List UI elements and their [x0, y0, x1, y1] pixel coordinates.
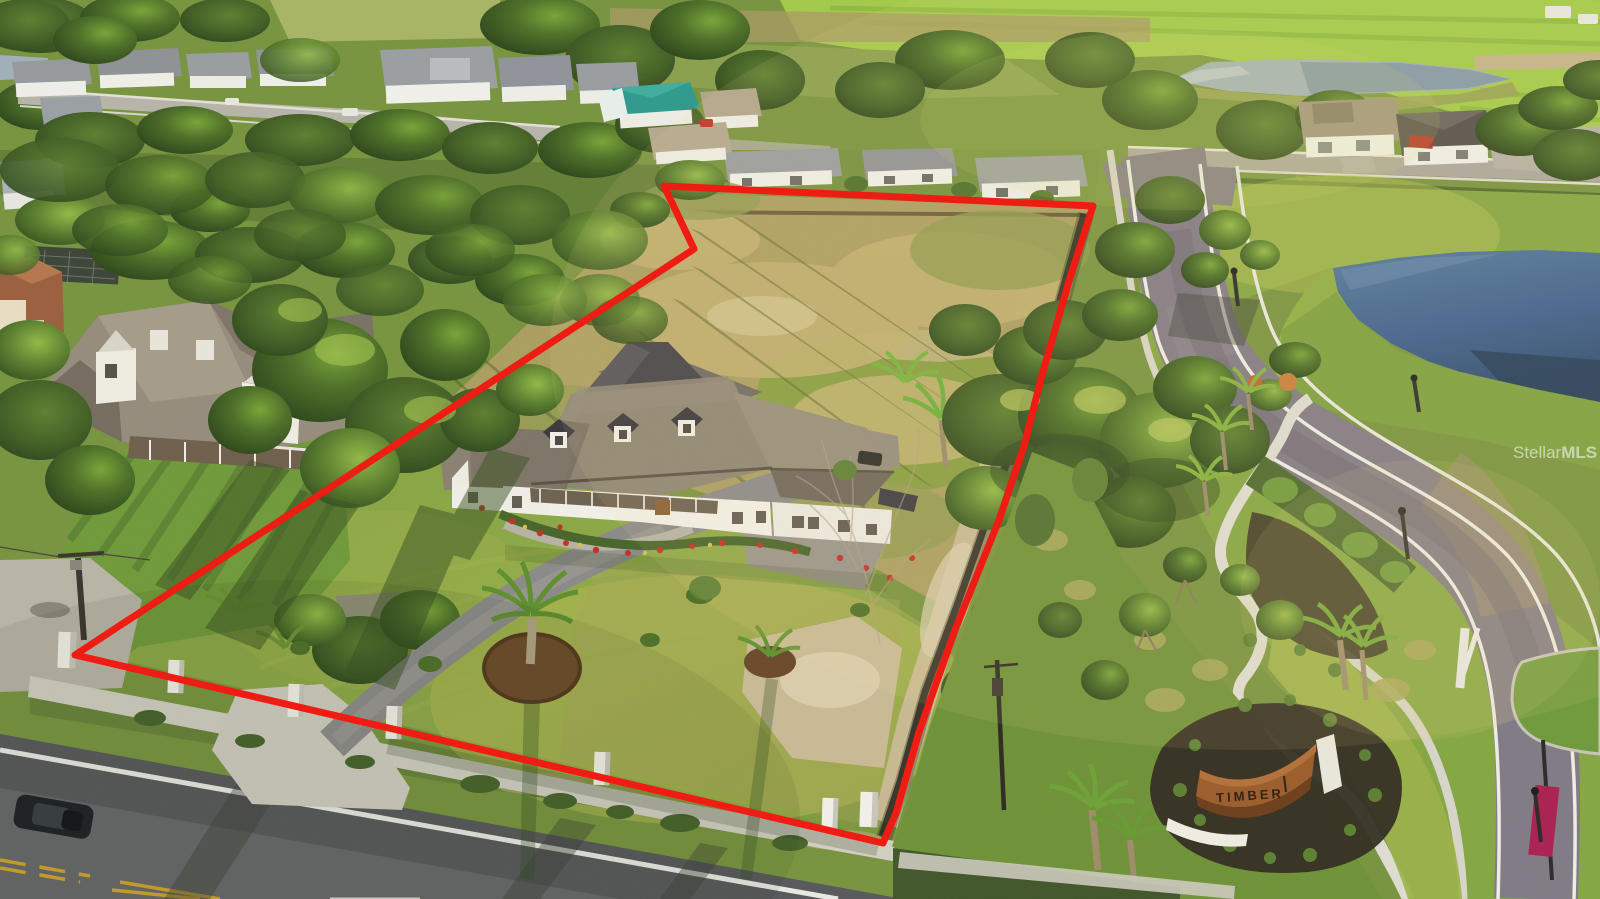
- svg-text:StellarMLS: StellarMLS: [1513, 443, 1597, 462]
